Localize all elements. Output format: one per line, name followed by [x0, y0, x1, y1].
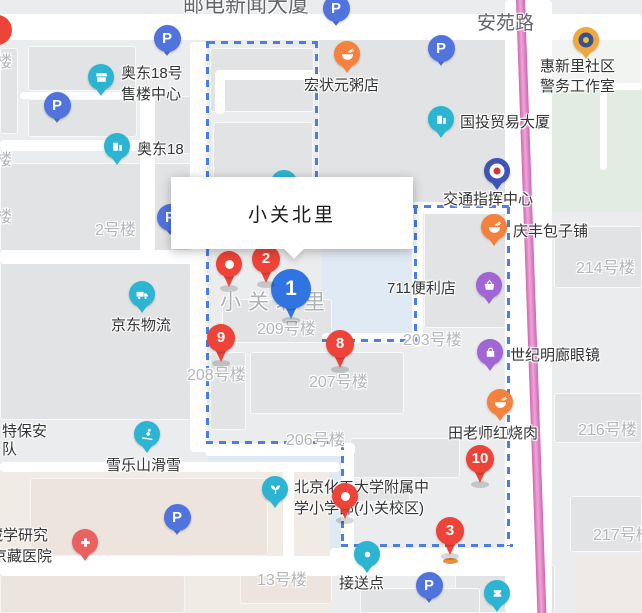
building-block — [0, 575, 185, 613]
traffic-command-center-icon[interactable] — [484, 158, 510, 184]
pin-dot — [225, 260, 234, 269]
hongzhuangyuan-porridge-icon-tail — [342, 66, 352, 73]
shiji-minglang-glasses-label[interactable]: 世纪明廊眼镜 — [510, 344, 600, 365]
street-label: 安苑路 — [477, 8, 534, 35]
map-marker-2[interactable]: 2 — [252, 245, 280, 273]
parking-icon[interactable]: P — [44, 92, 71, 119]
building-label: 13号楼 — [257, 566, 307, 590]
huixinli-police-office-label[interactable]: 警务工作室 — [540, 75, 615, 96]
map-zone — [576, 556, 642, 613]
building-block — [0, 262, 192, 420]
parking-icon[interactable]: P — [154, 25, 181, 52]
aodong-18-sales-center-label[interactable]: 售楼中心 — [121, 83, 181, 104]
xueleshan-ski-icon-tail — [142, 446, 152, 453]
shiji-minglang-glasses-icon[interactable] — [477, 339, 503, 365]
map-marker-3[interactable]: 3 — [436, 517, 464, 545]
building-block — [350, 438, 460, 478]
security-unit-label[interactable]: 队 — [2, 438, 17, 459]
primary-school-xiaoguan-label[interactable]: 学小学部(小关校区) — [294, 497, 424, 518]
guotou-trade-tower-label[interactable]: 国投贸易大厦 — [460, 111, 550, 132]
road — [0, 250, 200, 264]
building-label: 2号楼 — [95, 216, 136, 240]
road — [140, 90, 155, 252]
road — [215, 70, 225, 114]
xueleshan-ski-icon[interactable] — [134, 421, 160, 447]
aodong-18-icon-tail — [112, 158, 122, 165]
poi-theater-icon-tail — [492, 605, 502, 612]
boundary-segment — [208, 41, 318, 44]
parking-icon[interactable]: P — [428, 35, 455, 62]
building-label: 216号楼 — [578, 416, 637, 440]
jingzang-hospital-label[interactable]: 藏学研究 — [0, 524, 48, 545]
pickup-point-label[interactable]: 接送点 — [339, 572, 384, 593]
parking-icon[interactable]: P — [323, 0, 350, 22]
tooltip-pointer — [284, 239, 304, 259]
huixinli-police-office-label[interactable]: 惠新里社区 — [540, 55, 615, 76]
aodong-18-sales-center-icon[interactable] — [88, 64, 114, 90]
pin-dot — [341, 492, 350, 501]
building-label: 217号楼 — [593, 521, 642, 545]
parking-icon[interactable]: P — [416, 572, 443, 599]
tianlaoshi-braised-pork-icon-tail — [495, 414, 505, 421]
boundary-segment — [507, 207, 510, 546]
building-block — [30, 478, 268, 556]
badge-core — [583, 37, 589, 43]
qingfeng-baozi-label[interactable]: 庆丰包子铺 — [513, 220, 588, 241]
building-block — [210, 48, 314, 112]
711-store-label[interactable]: 711便利店 — [387, 277, 456, 298]
jingzang-hospital-icon-tail — [80, 554, 90, 561]
qingfeng-baozi-icon-tail — [489, 239, 499, 246]
building-label: 楼 — [0, 203, 12, 227]
qingfeng-baozi-icon[interactable] — [481, 214, 507, 240]
area-tooltip[interactable]: 小关北里 — [171, 177, 413, 249]
parking-icon[interactable]: P — [164, 504, 191, 531]
aodong-18-sales-center-label[interactable]: 奥东18号 — [121, 62, 183, 83]
pickup-point-icon[interactable] — [354, 541, 380, 567]
711-store-icon-tail — [484, 297, 494, 304]
building-label: 206号楼 — [286, 426, 345, 450]
map-canvas[interactable]: 安苑路邮电新闻大厦小关北里2号楼209号楼208号楼207号楼206号楼203号… — [0, 0, 642, 613]
jingzang-hospital-label[interactable]: 京藏医院 — [0, 545, 52, 566]
boundary-segment — [414, 207, 417, 341]
street-label: 邮电新闻大厦 — [183, 0, 309, 19]
map-marker-9[interactable]: 9 — [207, 324, 235, 352]
building-label: 楼 — [0, 48, 12, 72]
area-tooltip-title: 小关北里 — [248, 200, 336, 227]
jingzang-hospital-icon[interactable] — [72, 529, 98, 555]
primary-school-xiaoguan-icon[interactable] — [262, 476, 288, 502]
xueleshan-ski-label[interactable]: 雪乐山滑雪 — [106, 454, 181, 475]
aodong-18-label[interactable]: 奥东18 — [137, 138, 184, 159]
jd-logistics-label[interactable]: 京东物流 — [111, 314, 171, 335]
hongzhuangyuan-porridge-label[interactable]: 宏状元粥店 — [304, 74, 379, 95]
badge-core — [494, 168, 501, 175]
traffic-command-center-label[interactable]: 交通指挥中心 — [443, 188, 533, 209]
building-label: 楼 — [0, 146, 12, 170]
tianlaoshi-braised-pork-label[interactable]: 田老师红烧肉 — [448, 422, 538, 443]
map-marker[interactable] — [216, 251, 242, 277]
building-label: 203号楼 — [403, 326, 462, 350]
aodong-18-icon[interactable] — [104, 133, 130, 159]
shiji-minglang-glasses-icon-tail — [485, 364, 495, 371]
poi-theater-icon[interactable] — [484, 580, 510, 606]
map-marker-1[interactable]: 1 — [271, 269, 311, 309]
primary-school-xiaoguan-label[interactable]: 北京化工大学附属中 — [294, 476, 429, 497]
primary-school-xiaoguan-icon-tail — [270, 501, 280, 508]
building-label: 214号楼 — [576, 254, 635, 278]
jd-logistics-icon[interactable] — [129, 281, 155, 307]
jd-logistics-icon-tail — [137, 306, 147, 313]
building-block — [28, 46, 136, 91]
road — [600, 90, 607, 170]
map-marker[interactable] — [332, 483, 358, 509]
aodong-18-sales-center-icon-tail — [96, 89, 106, 96]
guotou-trade-tower-icon-tail — [436, 131, 446, 138]
guotou-trade-tower-icon[interactable] — [428, 106, 454, 132]
711-store-icon[interactable] — [476, 272, 502, 298]
hongzhuangyuan-porridge-icon[interactable] — [334, 41, 360, 67]
map-marker-8[interactable]: 8 — [326, 330, 354, 358]
huixinli-police-office-icon[interactable] — [573, 27, 599, 53]
tianlaoshi-braised-pork-icon[interactable] — [487, 389, 513, 415]
map-marker-10[interactable]: 10 — [466, 445, 494, 473]
